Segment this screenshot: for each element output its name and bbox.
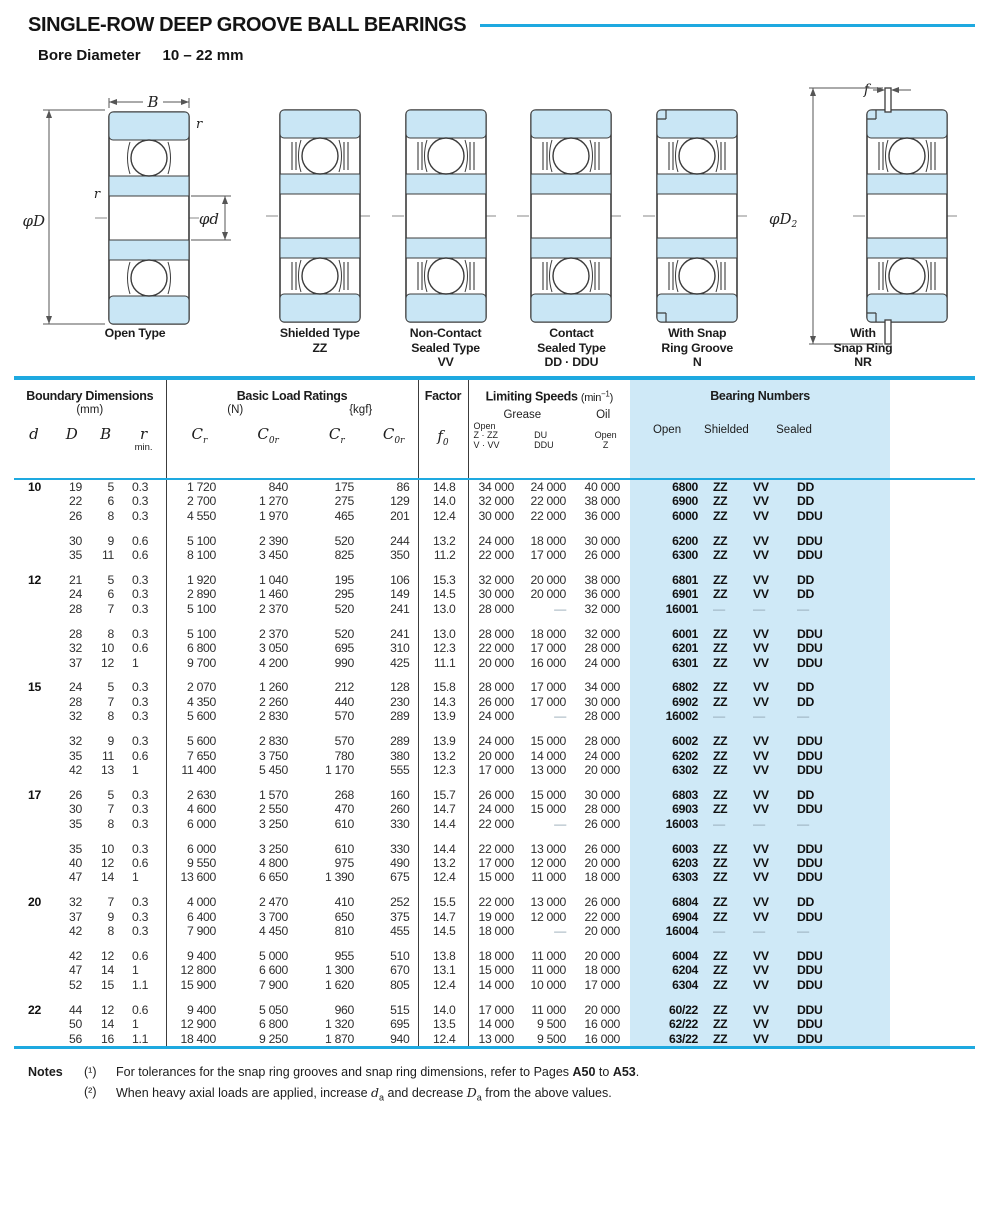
table-row: 5014112 9006 8001 32069513.514 0009 5001… xyxy=(14,1017,975,1031)
col-cr-kgf: Cr xyxy=(304,425,370,446)
table-row: 3790.36 4003 70065037514.719 00012 00022… xyxy=(14,910,975,924)
diagram-noncontact-sealed-type: Non-ContactSealed TypeVV xyxy=(386,66,506,374)
table-row: 42120.69 4005 00095551013.818 00011 0002… xyxy=(14,949,975,963)
svg-text:r: r xyxy=(94,187,101,202)
svg-text:f: f xyxy=(863,82,872,98)
diagram-label-vv: Non-ContactSealed TypeVV xyxy=(386,326,506,370)
spacer-row xyxy=(14,777,975,788)
table-row: 3070.34 6002 55047026014.724 00015 00028… xyxy=(14,802,975,816)
header-filler xyxy=(890,378,975,479)
spacer-row xyxy=(14,885,975,896)
notes-label: Notes xyxy=(28,1065,84,1079)
diagram-label-shielded: Shielded TypeZZ xyxy=(260,326,380,355)
table-row: 4714113 6006 6501 39067512.415 00011 000… xyxy=(14,870,975,884)
spacer-row xyxy=(14,724,975,735)
page-title: SINGLE-ROW DEEP GROOVE BALL BEARINGS xyxy=(28,14,466,37)
table-row: 371219 7004 20099042511.120 00016 00024 … xyxy=(14,656,975,670)
table-row: 2880.35 1002 37052024113.028 00018 00032… xyxy=(14,627,975,641)
diagram-contact-sealed-type: ContactSealed TypeDD · DDU xyxy=(511,66,631,374)
col-d: d xyxy=(14,425,54,453)
bore-label: Bore Diameter xyxy=(38,47,141,64)
table-row: 122150.31 9201 04019510615.332 00020 000… xyxy=(14,573,975,587)
diagram-label-ring: WithSnap RingNR xyxy=(763,326,963,370)
bore-value: 10 – 22 mm xyxy=(163,47,244,64)
svg-text:φD: φD xyxy=(22,212,45,230)
table-header-row: Boundary Dimensions (mm) d D B rmin. Bas… xyxy=(14,378,975,479)
table-row: 203270.34 0002 47041025215.522 00013 000… xyxy=(14,895,975,909)
table-row: 4213111 4005 4501 17055512.317 00013 000… xyxy=(14,763,975,777)
table-row: 2680.34 5501 97046520112.430 00022 00036… xyxy=(14,509,975,523)
diagram-snap-ring: f φD2 WithSnap RingNR xyxy=(763,66,963,374)
label-oil: Oil xyxy=(576,409,630,421)
header-factor: Factor f0 xyxy=(418,378,468,479)
svg-text:B: B xyxy=(146,94,158,111)
col-bearing-open: Open xyxy=(630,424,704,436)
bearing-type-diagrams: B r r φD φd Open Type Shielded TypeZZ No… xyxy=(16,66,963,374)
col-grease-du: DUDDU xyxy=(524,431,581,450)
col-B: B xyxy=(90,425,122,453)
spacer-row xyxy=(14,616,975,627)
table-row: 2870.34 3502 26044023014.326 00017 00030… xyxy=(14,695,975,709)
diagram-label-open: Open Type xyxy=(16,326,254,341)
diagram-open-type: B r r φD φd Open Type xyxy=(16,66,254,374)
col-oil-open: OpenZ xyxy=(581,431,630,450)
unit-kgf: {kgf} xyxy=(304,404,418,416)
col-r: rmin. xyxy=(122,425,166,453)
table-row: 35100.36 0003 25061033014.422 00013 0002… xyxy=(14,842,975,856)
col-c0r-n: C0r xyxy=(232,425,304,446)
col-D: D xyxy=(54,425,90,453)
table-row: 172650.32 6301 57026816015.726 00015 000… xyxy=(14,788,975,802)
diagram-snap-ring-groove: With SnapRing GrooveN xyxy=(637,66,757,374)
col-c0r-kgf: C0r xyxy=(370,425,418,446)
header-bearing-numbers: Bearing Numbers Open Shielded Sealed xyxy=(630,378,890,479)
table-row: 32100.66 8003 05069531012.322 00017 0002… xyxy=(14,641,975,655)
col-f0: f0 xyxy=(419,427,468,448)
col-bearing-shielded: Shielded xyxy=(704,424,744,436)
col-cr-n: Cr xyxy=(167,425,233,446)
table-row: 3090.65 1002 39052024413.224 00018 00030… xyxy=(14,534,975,548)
diagram-label-groove: With SnapRing GrooveN xyxy=(637,326,757,370)
header-basic-load-ratings: Basic Load Ratings (N) {kgf} Cr C0r Cr C… xyxy=(166,378,418,479)
table-row: 152450.32 0701 26021212815.828 00017 000… xyxy=(14,680,975,694)
title-rule xyxy=(480,24,975,27)
spacer-row xyxy=(14,831,975,842)
header-boundary-dimensions: Boundary Dimensions (mm) d D B rmin. xyxy=(14,378,166,479)
snap-ring-groove-drawing xyxy=(642,102,752,333)
table-row: 101950.31 7208401758614.834 00024 00040 … xyxy=(14,479,975,494)
bearing-table: Boundary Dimensions (mm) d D B rmin. Bas… xyxy=(14,376,989,1049)
unit-newton: (N) xyxy=(167,404,304,416)
table-row: 2460.32 8901 46029514914.530 00020 00036… xyxy=(14,587,975,601)
table-row: 40120.69 5504 80097549013.217 00012 0002… xyxy=(14,856,975,870)
open-type-drawing: B r r φD φd xyxy=(15,94,255,351)
table-row: 3280.35 6002 83057028913.924 000—28 0001… xyxy=(14,709,975,723)
spacer-row xyxy=(14,563,975,574)
bore-diameter-subtitle: Bore Diameter10 – 22 mm xyxy=(38,47,989,64)
table-row: 56161.118 4009 2501 87094012.413 0009 50… xyxy=(14,1032,975,1048)
col-bearing-sealed: Sealed xyxy=(744,424,844,436)
diagram-label-dd: ContactSealed TypeDD · DDU xyxy=(511,326,631,370)
note-1: Notes (¹) For tolerances for the snap ri… xyxy=(28,1065,989,1079)
table-row: 35110.67 6503 75078038013.220 00014 0002… xyxy=(14,749,975,763)
snap-ring-drawing: f φD2 xyxy=(765,74,961,361)
svg-text:φD2: φD2 xyxy=(769,210,798,230)
spacer-row xyxy=(14,939,975,950)
table-row: 4714112 8006 6001 30067013.115 00011 000… xyxy=(14,963,975,977)
diagram-shielded-type: Shielded TypeZZ xyxy=(260,66,380,374)
notes-section: Notes (¹) For tolerances for the snap ri… xyxy=(28,1065,989,1103)
header-limiting-speeds: Limiting Speeds (min−1) Grease Oil OpenZ… xyxy=(468,378,630,479)
table-row: 3580.36 0003 25061033014.422 000—26 0001… xyxy=(14,817,975,831)
spacer-row xyxy=(14,992,975,1003)
label-grease: Grease xyxy=(469,409,577,421)
table-row: 2244120.69 4005 05096051514.017 00011 00… xyxy=(14,1003,975,1017)
table-row: 35110.68 1003 45082535011.222 00017 0002… xyxy=(14,548,975,562)
noncontact-sealed-drawing xyxy=(391,102,501,333)
shielded-type-drawing xyxy=(265,102,375,333)
svg-text:φd: φd xyxy=(199,210,219,228)
title-bar: SINGLE-ROW DEEP GROOVE BALL BEARINGS xyxy=(28,14,975,37)
contact-sealed-drawing xyxy=(516,102,626,333)
table-row: 2260.32 7001 27027512914.032 00022 00038… xyxy=(14,494,975,508)
note-2: (²) When heavy axial loads are applied, … xyxy=(28,1085,989,1103)
bearing-data-table: Boundary Dimensions (mm) d D B rmin. Bas… xyxy=(14,376,975,1049)
spacer-row xyxy=(14,523,975,534)
table-row: 2870.35 1002 37052024113.028 000—32 0001… xyxy=(14,602,975,616)
table-row: 52151.115 9007 9001 62080512.414 00010 0… xyxy=(14,978,975,992)
table-row: 4280.37 9004 45081045514.518 000—20 0001… xyxy=(14,924,975,938)
svg-text:r: r xyxy=(196,117,203,132)
spacer-row xyxy=(14,670,975,681)
table-row: 3290.35 6002 83057028913.924 00015 00028… xyxy=(14,734,975,748)
col-grease-open: OpenZ · ZZV · VV xyxy=(469,422,525,451)
